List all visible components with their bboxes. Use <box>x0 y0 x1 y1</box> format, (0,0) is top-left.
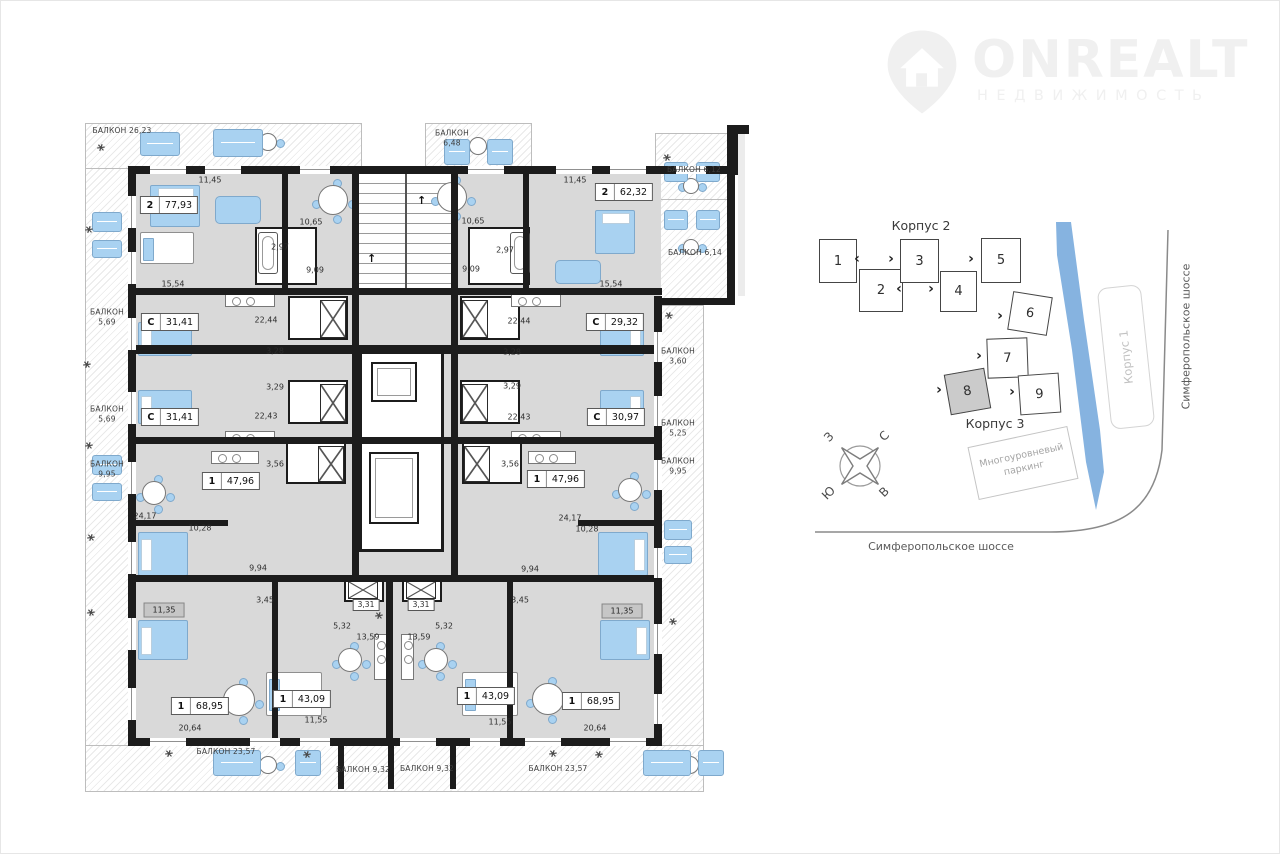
window <box>150 738 186 746</box>
chair <box>166 493 175 502</box>
dimension-label: 13,59 <box>408 633 431 642</box>
window <box>128 618 136 650</box>
balcony-label: БАЛКОН3,60 <box>661 346 695 366</box>
bed <box>138 620 188 660</box>
shower-cabin <box>462 300 488 338</box>
ledge-strip <box>738 134 745 296</box>
window <box>525 738 561 746</box>
elevator-car <box>371 362 417 402</box>
kitchen-counter <box>511 294 561 307</box>
logo-brand: ONREALT <box>972 30 1250 90</box>
apartment-label: 262,32 <box>595 183 653 201</box>
wall <box>272 582 278 738</box>
wall <box>386 575 393 738</box>
lounger <box>643 750 691 776</box>
building-5[interactable]: 5 <box>981 238 1021 283</box>
apartment-label: 147,96 <box>527 470 585 488</box>
shower-cabin <box>464 446 490 482</box>
dining-table <box>618 478 642 502</box>
dimension-label: 9,09 <box>462 265 480 274</box>
balcony-label: БАЛКОН 26,23 <box>92 126 151 136</box>
dining-table <box>532 683 564 715</box>
apartment-label: С31,41 <box>141 313 199 331</box>
dimension-label: 22,43 <box>508 413 531 422</box>
lounger <box>92 212 122 232</box>
apartment-label: 143,09 <box>273 690 331 708</box>
wall <box>128 520 228 526</box>
chair <box>333 215 342 224</box>
apartment-label: С29,32 <box>586 313 644 331</box>
wall <box>128 288 662 295</box>
logo-pin-icon <box>884 28 960 116</box>
building-9[interactable]: 9 <box>1018 373 1062 416</box>
apartment-label: С30,97 <box>587 408 645 426</box>
window <box>610 738 646 746</box>
chair <box>548 715 557 724</box>
chevron-icon: ‹ <box>854 252 860 266</box>
lounger <box>696 210 720 230</box>
storage-room-label: 11,35 <box>602 604 643 619</box>
window <box>128 462 136 494</box>
window <box>300 738 330 746</box>
building-7[interactable]: 7 <box>986 337 1028 378</box>
window <box>128 318 136 350</box>
dimension-label: 3,56 <box>266 460 284 469</box>
window <box>654 694 662 724</box>
shower-cabin <box>320 300 346 338</box>
window <box>128 392 136 424</box>
dining-table <box>424 648 448 672</box>
dimension-label: 3,28 <box>266 347 284 356</box>
bed <box>138 532 188 576</box>
window <box>128 688 136 720</box>
highway-label-right: Симферопольское шоссе <box>1180 237 1193 437</box>
dimension-label: 3,45 <box>256 596 274 605</box>
chair <box>255 700 264 709</box>
sofa <box>555 260 601 284</box>
chair <box>698 183 707 192</box>
dimension-label: 9,94 <box>249 564 267 573</box>
chair <box>350 672 359 681</box>
window <box>250 738 280 746</box>
highway-label-bottom: Симферопольское шоссе <box>830 540 1052 553</box>
chair <box>448 660 457 669</box>
dimension-label: 11,45 <box>199 176 222 185</box>
chair <box>362 660 371 669</box>
balcony-area <box>85 168 130 792</box>
dimension-label: 20,64 <box>179 724 202 733</box>
storage-room-label: 11,35 <box>144 603 185 618</box>
dimension-label: 3,56 <box>501 460 519 469</box>
kitchen-counter <box>225 294 275 307</box>
balcony-label: БАЛКОН5,69 <box>90 307 124 327</box>
bed <box>595 210 635 254</box>
chair <box>239 716 248 725</box>
window <box>205 166 241 174</box>
dimension-label: 10,28 <box>576 525 599 534</box>
apartment-label: 168,95 <box>562 692 620 710</box>
page-canvas: ONREALT НЕДВИЖИМОСТЬ ↑↑**************277… <box>0 0 1280 854</box>
wall <box>654 298 735 305</box>
dimension-label: 2,97 <box>496 246 514 255</box>
balcony-label: БАЛКОН5,25 <box>661 418 695 438</box>
building-1[interactable]: 1 <box>819 239 857 283</box>
window <box>470 738 500 746</box>
lounger <box>92 483 122 501</box>
apartment-label: 143,09 <box>457 687 515 705</box>
dimension-label: 3,28 <box>503 348 521 357</box>
dimension-label: 13,59 <box>357 633 380 642</box>
window <box>556 166 592 174</box>
shower-cabin <box>348 581 378 599</box>
dimension-label: 3,31 <box>408 599 435 611</box>
dimension-label: 3,45 <box>511 596 529 605</box>
dimension-label: 24,17 <box>134 512 157 521</box>
lounger <box>92 240 122 258</box>
chair <box>467 197 476 206</box>
dimension-label: 22,44 <box>508 317 531 326</box>
lounger <box>664 210 688 230</box>
wall <box>352 166 359 582</box>
elevator-car <box>369 452 419 524</box>
window <box>654 624 662 654</box>
dimension-label: 15,54 <box>162 280 185 289</box>
wall <box>523 166 529 295</box>
building-4[interactable]: 4 <box>940 271 977 312</box>
dimension-label: 22,44 <box>255 316 278 325</box>
chevron-icon: › <box>968 252 974 266</box>
window <box>128 542 136 574</box>
bed <box>140 232 194 264</box>
korpus2-title: Корпус 2 <box>861 218 981 233</box>
dining-table <box>259 756 277 774</box>
chair <box>436 672 445 681</box>
dimension-label: 24,17 <box>559 514 582 523</box>
wall <box>128 437 662 444</box>
wall <box>128 345 662 354</box>
dimension-label: 11,55 <box>305 716 328 725</box>
sofa <box>215 196 261 224</box>
lounger <box>664 520 692 540</box>
shower-cabin <box>406 581 436 599</box>
dimension-label: 3,31 <box>353 599 380 611</box>
dining-table <box>318 185 348 215</box>
chevron-icon: › <box>888 252 894 266</box>
chair <box>630 502 639 511</box>
apartment-label: С31,41 <box>141 408 199 426</box>
lounger <box>698 750 724 776</box>
balcony-label: БАЛКОН9,95 <box>661 456 695 476</box>
building-3[interactable]: 3 <box>900 239 939 283</box>
shower-cabin <box>320 384 346 422</box>
kitchen-counter <box>528 451 576 464</box>
chevron-icon: › <box>976 349 982 363</box>
lounger <box>664 546 692 564</box>
dimension-label: 5,32 <box>333 622 351 631</box>
chevron-icon: ‹ <box>896 282 902 296</box>
apartment-label: 277,93 <box>140 196 198 214</box>
window <box>128 252 136 284</box>
chevron-icon: › <box>936 383 942 397</box>
dimension-label: 3,29 <box>503 382 521 391</box>
balcony-label: БАЛКОН 6,12 <box>667 165 721 175</box>
balcony-label: БАЛКОН 9,32 <box>336 765 390 775</box>
wall <box>727 166 735 305</box>
lounger <box>213 129 263 157</box>
dimension-label: 11,55 <box>489 718 512 727</box>
balcony-label: БАЛКОН 23,57 <box>528 764 587 774</box>
dining-table <box>338 648 362 672</box>
apartment-label: 147,96 <box>202 472 260 490</box>
dimension-label: 5,32 <box>435 622 453 631</box>
shower-cabin <box>462 384 488 422</box>
bed <box>598 532 648 576</box>
wall <box>451 166 458 582</box>
balcony-label: БАЛКОН5,69 <box>90 404 124 424</box>
bathtub <box>258 232 278 274</box>
logo-subtitle: НЕДВИЖИМОСТЬ <box>977 88 1211 104</box>
balcony-area <box>85 745 704 792</box>
building-6[interactable]: 6 <box>1007 291 1053 336</box>
chevron-icon: › <box>997 309 1003 323</box>
balcony-label: БАЛКОН9,95 <box>90 459 124 479</box>
dimension-label: 3,29 <box>266 383 284 392</box>
window <box>400 738 436 746</box>
dimension-label: 20,64 <box>584 724 607 733</box>
balcony-label: БАЛКОН6,48 <box>435 128 469 148</box>
dining-table <box>469 137 487 155</box>
window <box>654 548 662 578</box>
balcony-label: БАЛКОН 23,57 <box>196 747 255 757</box>
chair <box>276 139 285 148</box>
dimension-label: 22,43 <box>255 412 278 421</box>
window <box>128 196 136 228</box>
wall <box>282 166 288 295</box>
chevron-icon: › <box>928 282 934 296</box>
kitchen-counter <box>211 451 259 464</box>
window <box>300 166 330 174</box>
chevron-icon: › <box>1009 385 1015 399</box>
korpus1-label: Корпус 1 <box>1116 329 1136 384</box>
dimension-label: 15,54 <box>600 280 623 289</box>
wall <box>128 575 662 582</box>
shower-cabin <box>318 446 344 482</box>
balcony-label: БАЛКОН 6,14 <box>668 248 722 258</box>
window <box>610 166 646 174</box>
dimension-label: 10,65 <box>300 218 323 227</box>
dimension-label: 11,45 <box>564 176 587 185</box>
dimension-label: 2,97 <box>271 243 289 252</box>
dimension-label: 9,94 <box>521 565 539 574</box>
wall <box>727 125 749 134</box>
window <box>150 166 186 174</box>
balcony-label: БАЛКОН 9,32 <box>400 764 454 774</box>
bed <box>600 620 650 660</box>
dimension-label: 10,65 <box>462 217 485 226</box>
korpus3-title: Корпус 3 <box>935 416 1055 431</box>
chair <box>642 490 651 499</box>
apartment-label: 168,95 <box>171 697 229 715</box>
wall <box>507 582 513 738</box>
dimension-label: 9,09 <box>306 266 324 275</box>
wall <box>128 738 662 746</box>
dimension-label: 10,28 <box>189 524 212 533</box>
building-8-selected[interactable]: 8 <box>944 368 991 415</box>
dining-table <box>142 481 166 505</box>
window <box>468 166 504 174</box>
chair <box>276 762 285 771</box>
lounger <box>487 139 513 165</box>
